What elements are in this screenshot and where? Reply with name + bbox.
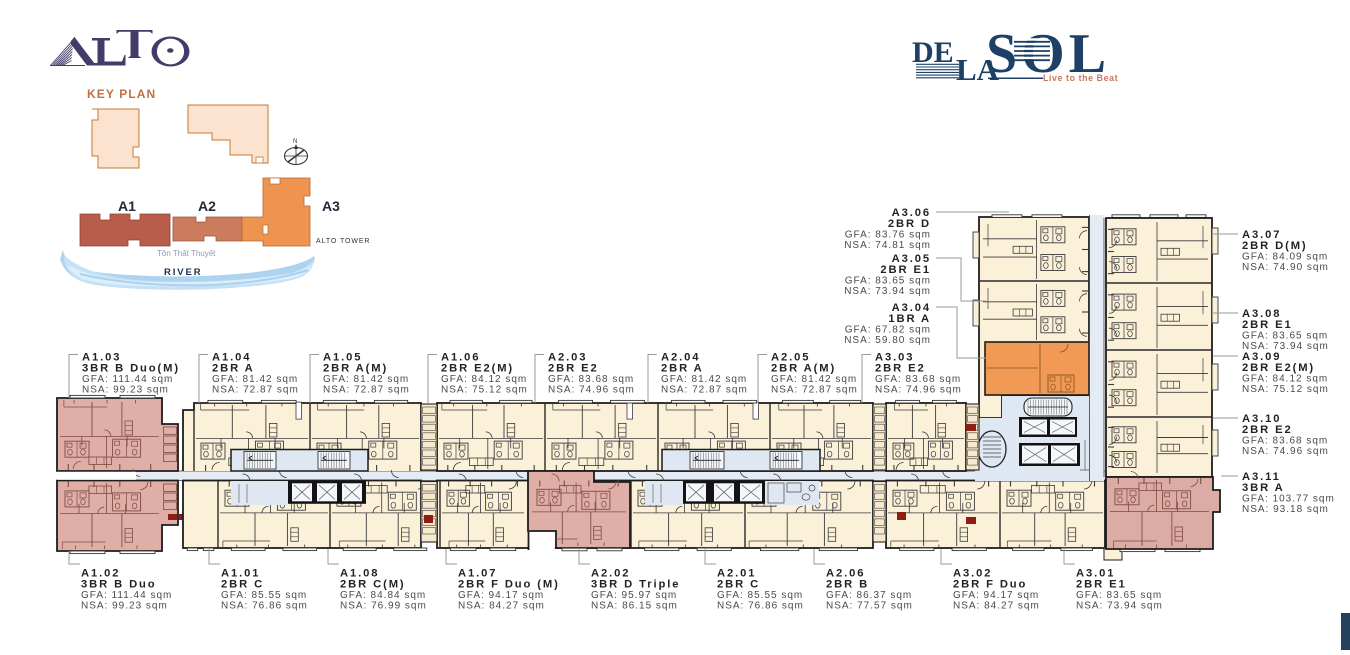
svg-text:2BR C(M): 2BR C(M) — [340, 578, 406, 590]
svg-text:2BR E2(M): 2BR E2(M) — [1242, 362, 1315, 374]
svg-text:NSA: 76.86 sqm: NSA: 76.86 sqm — [221, 601, 308, 612]
svg-text:GFA: 85.55 sqm: GFA: 85.55 sqm — [717, 590, 803, 601]
svg-text:NSA: 74.81 sqm: NSA: 74.81 sqm — [844, 240, 931, 251]
svg-text:2BR A: 2BR A — [212, 362, 255, 374]
svg-text:NSA: 59.80 sqm: NSA: 59.80 sqm — [844, 335, 931, 346]
svg-text:KEY PLAN: KEY PLAN — [87, 87, 156, 101]
svg-text:2BR A: 2BR A — [661, 362, 704, 374]
svg-text:NSA: 75.12 sqm: NSA: 75.12 sqm — [1242, 384, 1329, 395]
svg-text:GFA: 81.42 sqm: GFA: 81.42 sqm — [212, 374, 298, 385]
svg-text:N: N — [293, 139, 297, 145]
svg-text:GFA: 84.84 sqm: GFA: 84.84 sqm — [340, 590, 426, 601]
svg-text:NSA: 76.99 sqm: NSA: 76.99 sqm — [340, 601, 427, 612]
svg-text:GFA: 83.68 sqm: GFA: 83.68 sqm — [548, 374, 634, 385]
svg-text:Tôn Thất Thuyết: Tôn Thất Thuyết — [157, 249, 216, 258]
svg-text:A1: A1 — [118, 198, 136, 214]
svg-text:2BR D: 2BR D — [888, 218, 931, 230]
svg-text:2BR F Duo (M): 2BR F Duo (M) — [458, 578, 560, 590]
svg-text:GFA: 95.97 sqm: GFA: 95.97 sqm — [591, 590, 677, 601]
svg-text:NSA: 86.15 sqm: NSA: 86.15 sqm — [591, 601, 678, 612]
svg-text:NSA: 72.87 sqm: NSA: 72.87 sqm — [661, 385, 748, 396]
svg-text:GFA: 83.65 sqm: GFA: 83.65 sqm — [1076, 590, 1162, 601]
svg-text:ALTO TOWER: ALTO TOWER — [316, 238, 370, 245]
svg-text:A2: A2 — [198, 198, 216, 214]
svg-text:GFA: 84.12 sqm: GFA: 84.12 sqm — [441, 374, 527, 385]
svg-text:2BR B: 2BR B — [826, 578, 869, 590]
svg-text:GFA: 86.37 sqm: GFA: 86.37 sqm — [826, 590, 912, 601]
svg-text:2BR A(M): 2BR A(M) — [323, 362, 388, 374]
svg-text:3BR B Duo(M): 3BR B Duo(M) — [82, 362, 180, 374]
svg-text:3BR D Triple: 3BR D Triple — [591, 578, 680, 590]
svg-text:GFA: 81.42 sqm: GFA: 81.42 sqm — [661, 374, 747, 385]
svg-text:NSA: 74.96 sqm: NSA: 74.96 sqm — [1242, 446, 1329, 457]
svg-text:2BR E1: 2BR E1 — [1076, 578, 1127, 590]
svg-text:A3: A3 — [322, 198, 340, 214]
svg-text:2BR D(M): 2BR D(M) — [1242, 240, 1308, 252]
svg-text:2BR E2: 2BR E2 — [875, 362, 926, 374]
svg-text:GFA: 94.17 sqm: GFA: 94.17 sqm — [953, 590, 1039, 601]
svg-text:NSA: 99.23 sqm: NSA: 99.23 sqm — [82, 385, 169, 396]
svg-text:NSA: 74.96 sqm: NSA: 74.96 sqm — [875, 385, 962, 396]
svg-text:NSA: 84.27 sqm: NSA: 84.27 sqm — [953, 601, 1040, 612]
svg-text:NSA: 74.96 sqm: NSA: 74.96 sqm — [548, 385, 635, 396]
svg-text:2BR E2: 2BR E2 — [548, 362, 599, 374]
svg-text:NSA: 73.94 sqm: NSA: 73.94 sqm — [844, 286, 931, 297]
svg-text:NSA: 84.27 sqm: NSA: 84.27 sqm — [458, 601, 545, 612]
svg-text:NSA: 72.87 sqm: NSA: 72.87 sqm — [212, 385, 299, 396]
svg-text:GFA: 83.76 sqm: GFA: 83.76 sqm — [845, 230, 931, 241]
svg-text:RIVER: RIVER — [164, 267, 203, 278]
svg-text:NSA: 72.87 sqm: NSA: 72.87 sqm — [323, 385, 410, 396]
svg-text:Live to the Beat: Live to the Beat — [1043, 73, 1118, 83]
svg-text:1BR A: 1BR A — [888, 313, 931, 325]
svg-text:GFA: 83.65 sqm: GFA: 83.65 sqm — [845, 276, 931, 287]
svg-text:2BR C: 2BR C — [717, 578, 760, 590]
svg-text:GFA: 83.68 sqm: GFA: 83.68 sqm — [875, 374, 961, 385]
svg-text:2BR C: 2BR C — [221, 578, 264, 590]
svg-text:GFA: 67.82 sqm: GFA: 67.82 sqm — [845, 325, 931, 336]
svg-text:GFA: 81.42 sqm: GFA: 81.42 sqm — [771, 374, 857, 385]
svg-text:GFA: 111.44 sqm: GFA: 111.44 sqm — [81, 590, 172, 601]
svg-text:GFA: 111.44 sqm: GFA: 111.44 sqm — [82, 374, 173, 385]
svg-text:NSA: 99.23 sqm: NSA: 99.23 sqm — [81, 601, 168, 612]
svg-text:NSA: 74.90 sqm: NSA: 74.90 sqm — [1242, 262, 1329, 273]
svg-text:GFA: 85.55 sqm: GFA: 85.55 sqm — [221, 590, 307, 601]
svg-text:2BR E2: 2BR E2 — [1242, 424, 1293, 436]
svg-text:GFA: 84.09 sqm: GFA: 84.09 sqm — [1242, 252, 1328, 263]
svg-text:3BR B Duo: 3BR B Duo — [81, 578, 157, 590]
svg-text:GFA: 94.17 sqm: GFA: 94.17 sqm — [458, 590, 544, 601]
svg-text:NSA: 77.57 sqm: NSA: 77.57 sqm — [826, 601, 913, 612]
svg-text:2BR F Duo: 2BR F Duo — [953, 578, 1027, 590]
svg-text:2BR E2(M): 2BR E2(M) — [441, 362, 514, 374]
svg-text:2BR E1: 2BR E1 — [1242, 319, 1293, 331]
svg-text:NSA: 93.18 sqm: NSA: 93.18 sqm — [1242, 504, 1329, 515]
svg-text:NSA: 75.12 sqm: NSA: 75.12 sqm — [441, 385, 528, 396]
svg-text:GFA: 103.77 sqm: GFA: 103.77 sqm — [1242, 494, 1335, 505]
svg-text:NSA: 76.86 sqm: NSA: 76.86 sqm — [717, 601, 804, 612]
svg-text:2BR A(M): 2BR A(M) — [771, 362, 836, 374]
svg-text:GFA: 81.42 sqm: GFA: 81.42 sqm — [323, 374, 409, 385]
svg-text:3BR A: 3BR A — [1242, 482, 1285, 494]
svg-text:GFA: 83.65 sqm: GFA: 83.65 sqm — [1242, 331, 1328, 342]
svg-text:GFA: 83.68 sqm: GFA: 83.68 sqm — [1242, 436, 1328, 447]
svg-text:NSA: 72.87 sqm: NSA: 72.87 sqm — [771, 385, 858, 396]
svg-text:NSA: 73.94 sqm: NSA: 73.94 sqm — [1076, 601, 1163, 612]
svg-text:2BR E1: 2BR E1 — [880, 264, 931, 276]
svg-text:GFA: 84.12 sqm: GFA: 84.12 sqm — [1242, 374, 1328, 385]
